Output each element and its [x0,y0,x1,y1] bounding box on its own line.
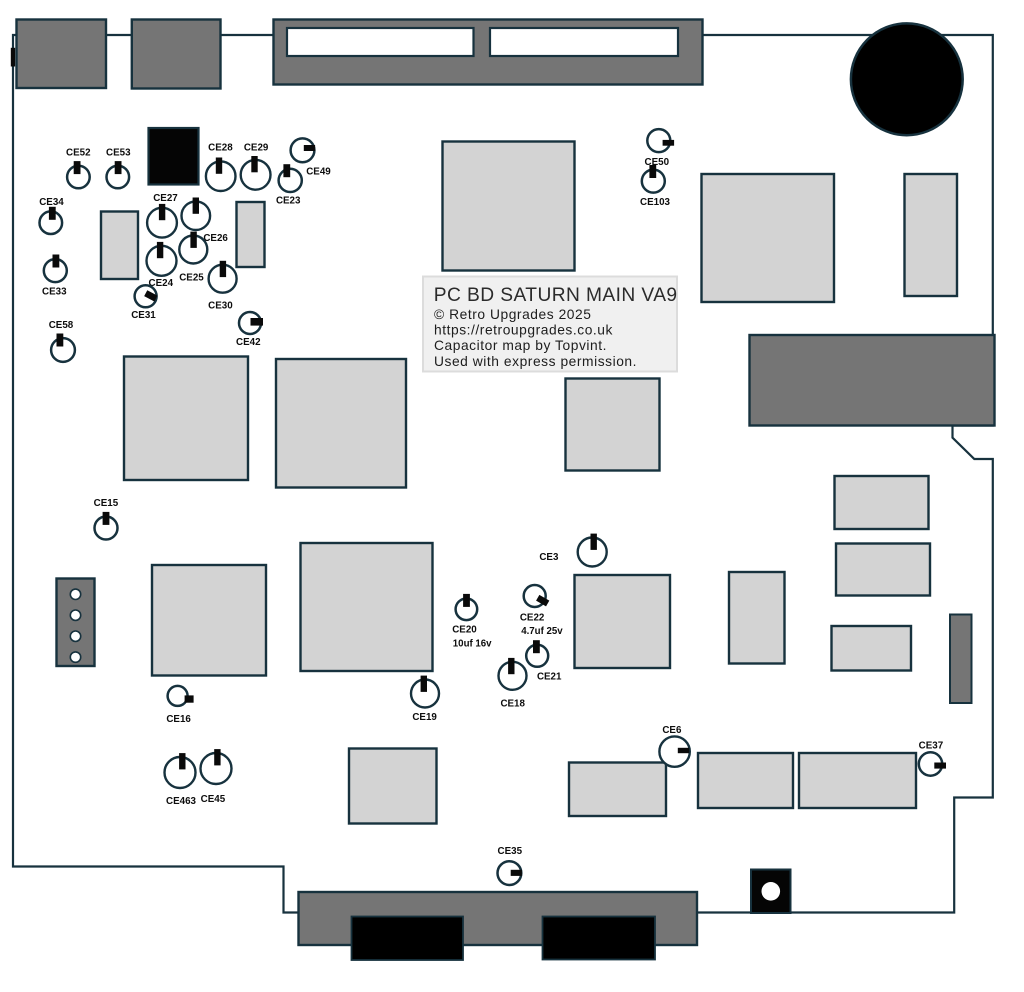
svg-text:CE33: CE33 [42,287,67,298]
svg-text:CE53: CE53 [106,148,131,159]
svg-text:CE50: CE50 [645,157,670,168]
svg-text:10uf 16v: 10uf 16v [453,638,492,649]
svg-text:https://retroupgrades.co.uk: https://retroupgrades.co.uk [434,323,613,338]
svg-text:CE34: CE34 [39,197,64,208]
svg-text:4.7uf 25v: 4.7uf 25v [521,626,563,637]
svg-text:CE15: CE15 [94,498,119,509]
svg-text:CE16: CE16 [166,714,191,725]
svg-text:CE18: CE18 [500,698,525,709]
svg-text:CE20: CE20 [452,625,477,636]
svg-text:CE23: CE23 [276,195,301,206]
svg-text:CE37: CE37 [919,741,944,752]
svg-text:CE28: CE28 [208,143,233,154]
svg-text:CE58: CE58 [49,320,74,331]
svg-text:CE42: CE42 [236,337,261,348]
svg-text:CE22: CE22 [520,612,545,623]
svg-text:CE6: CE6 [662,725,682,736]
svg-text:CE19: CE19 [412,712,437,723]
svg-text:© Retro Upgrades 2025: © Retro Upgrades 2025 [434,307,591,322]
svg-text:CE45: CE45 [201,794,226,805]
svg-text:CE35: CE35 [498,846,523,857]
svg-text:CE463: CE463 [166,796,197,807]
svg-text:CE31: CE31 [131,310,156,321]
svg-text:CE26: CE26 [203,233,228,244]
svg-text:Used with express permission.: Used with express permission. [434,354,637,369]
svg-text:CE25: CE25 [179,273,204,284]
svg-text:PC BD SATURN MAIN VA9: PC BD SATURN MAIN VA9 [434,285,678,306]
svg-text:CE21: CE21 [537,672,562,683]
svg-text:Capacitor map by Topvint.: Capacitor map by Topvint. [434,338,607,353]
svg-text:CE27: CE27 [153,193,178,204]
svg-text:CE3: CE3 [539,552,559,563]
svg-text:CE29: CE29 [244,143,269,154]
svg-text:CE49: CE49 [306,166,331,177]
svg-text:CE52: CE52 [66,148,91,159]
svg-text:CE103: CE103 [640,197,671,208]
svg-text:CE30: CE30 [208,301,233,312]
